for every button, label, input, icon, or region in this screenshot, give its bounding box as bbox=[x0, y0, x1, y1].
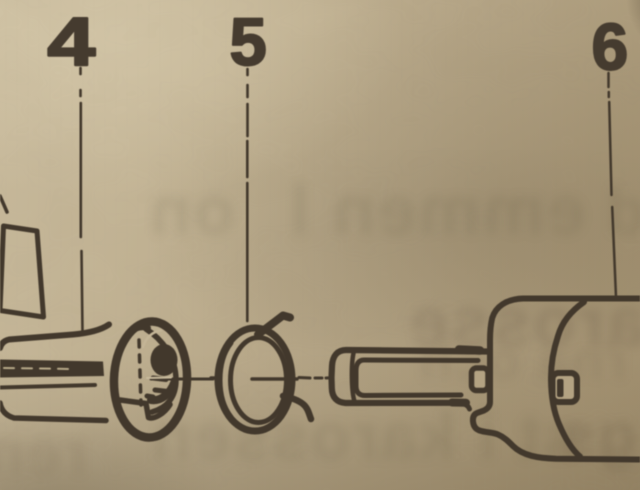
svg-text:6: 6 bbox=[592, 10, 629, 84]
svg-text:4: 4 bbox=[48, 4, 96, 80]
